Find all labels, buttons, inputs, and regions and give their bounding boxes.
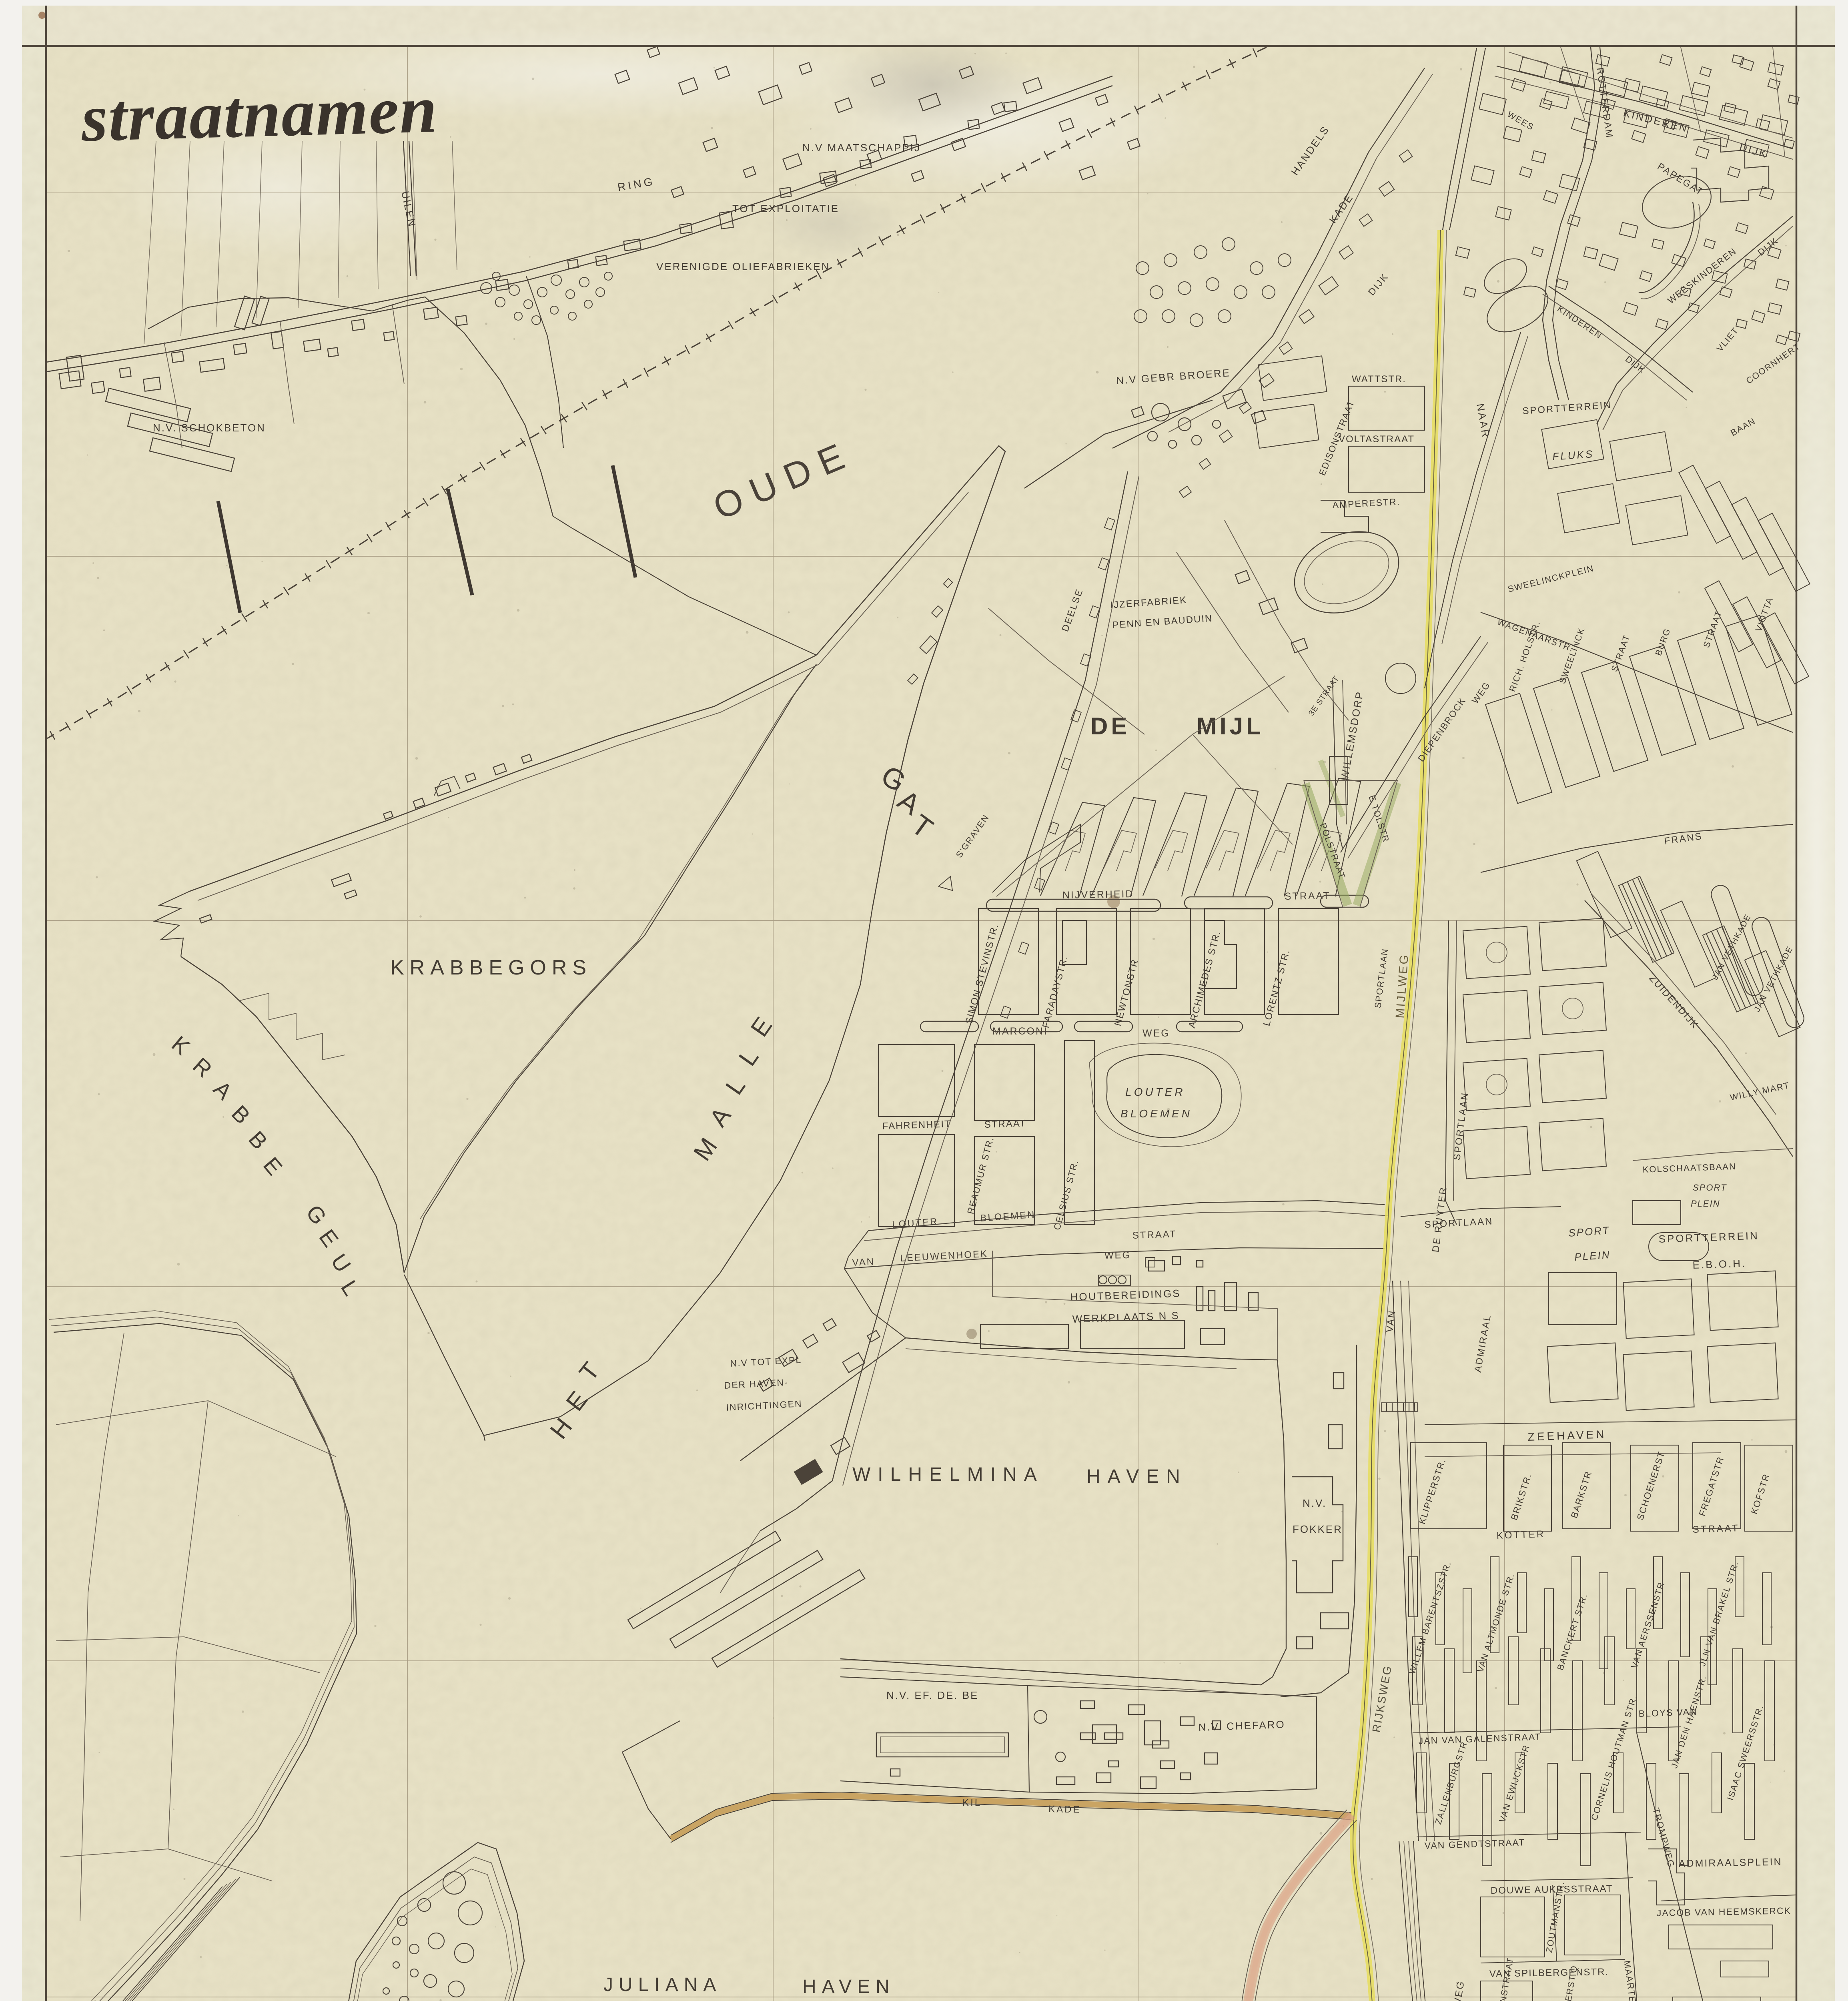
svg-text:STRAAT: STRAAT <box>1132 1229 1177 1241</box>
svg-text:WEG: WEG <box>1142 1028 1170 1039</box>
svg-text:KIL: KIL <box>962 1797 982 1809</box>
svg-text:HAVEN: HAVEN <box>802 1976 895 1997</box>
svg-text:WATTSTR.: WATTSTR. <box>1352 374 1406 385</box>
svg-text:VERENIGDE OLIEFABRIEKEN: VERENIGDE OLIEFABRIEKEN <box>656 261 830 273</box>
svg-text:NIJVERHEID: NIJVERHEID <box>1062 888 1134 901</box>
svg-text:STRAAT: STRAAT <box>1285 890 1331 902</box>
svg-text:TOT EXPLOITATIE: TOT EXPLOITATIE <box>732 203 839 215</box>
svg-text:DOUWE AUKESSTRAAT: DOUWE AUKESSTRAAT <box>1491 1883 1613 1896</box>
svg-text:MARCONI: MARCONI <box>992 1026 1048 1037</box>
svg-text:LOUTER: LOUTER <box>1125 1086 1185 1098</box>
svg-text:KRABBEGORS: KRABBEGORS <box>390 956 592 979</box>
svg-text:STRAAT: STRAAT <box>984 1118 1026 1130</box>
svg-text:PLEIN: PLEIN <box>1691 1199 1720 1209</box>
svg-text:N.V. EF. DE. BE: N.V. EF. DE. BE <box>886 1689 978 1701</box>
svg-text:SPORT: SPORT <box>1693 1183 1727 1193</box>
svg-text:HAVEN: HAVEN <box>1086 1466 1187 1487</box>
svg-text:KADE: KADE <box>1048 1804 1081 1815</box>
svg-text:WILHELMINA: WILHELMINA <box>852 1464 1044 1485</box>
svg-text:VAN: VAN <box>852 1256 875 1268</box>
svg-text:N.V MAATSCHAPPIJ: N.V MAATSCHAPPIJ <box>802 142 921 154</box>
svg-text:MIJL: MIJL <box>1197 713 1264 740</box>
svg-text:ADMIRAALSPLEIN: ADMIRAALSPLEIN <box>1679 1856 1782 1869</box>
svg-text:BLOEMEN: BLOEMEN <box>1120 1107 1192 1120</box>
svg-text:E.B.O.H.: E.B.O.H. <box>1692 1257 1747 1271</box>
svg-text:DE: DE <box>1090 713 1130 740</box>
svg-text:WEG: WEG <box>1104 1250 1131 1261</box>
svg-text:PLEIN: PLEIN <box>1574 1249 1611 1263</box>
svg-text:straatnamen: straatnamen <box>80 72 439 156</box>
svg-text:N.V.: N.V. <box>1303 1497 1327 1509</box>
svg-text:JULIANA: JULIANA <box>603 1974 722 1995</box>
svg-text:N.V. SCHOKBETON: N.V. SCHOKBETON <box>153 422 266 434</box>
svg-text:VOLTASTRAAT: VOLTASTRAAT <box>1339 434 1415 445</box>
svg-text:FOKKER: FOKKER <box>1293 1523 1343 1535</box>
